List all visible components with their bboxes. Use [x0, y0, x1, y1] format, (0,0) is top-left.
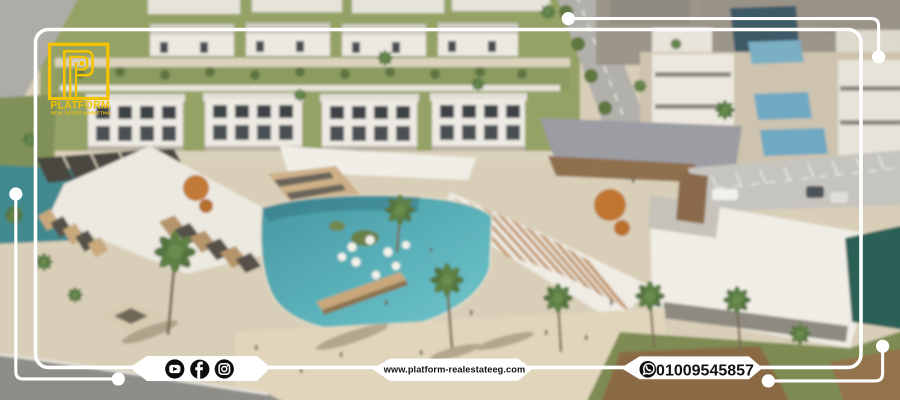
svg-text:REAL ESTATE MARKETING: REAL ESTATE MARKETING — [51, 111, 111, 116]
svg-text:www.platform-realestateeg.com: www.platform-realestateeg.com — [383, 364, 525, 374]
svg-text:01009545857: 01009545857 — [656, 363, 754, 380]
svg-text:PLATFORM: PLATFORM — [50, 99, 110, 111]
